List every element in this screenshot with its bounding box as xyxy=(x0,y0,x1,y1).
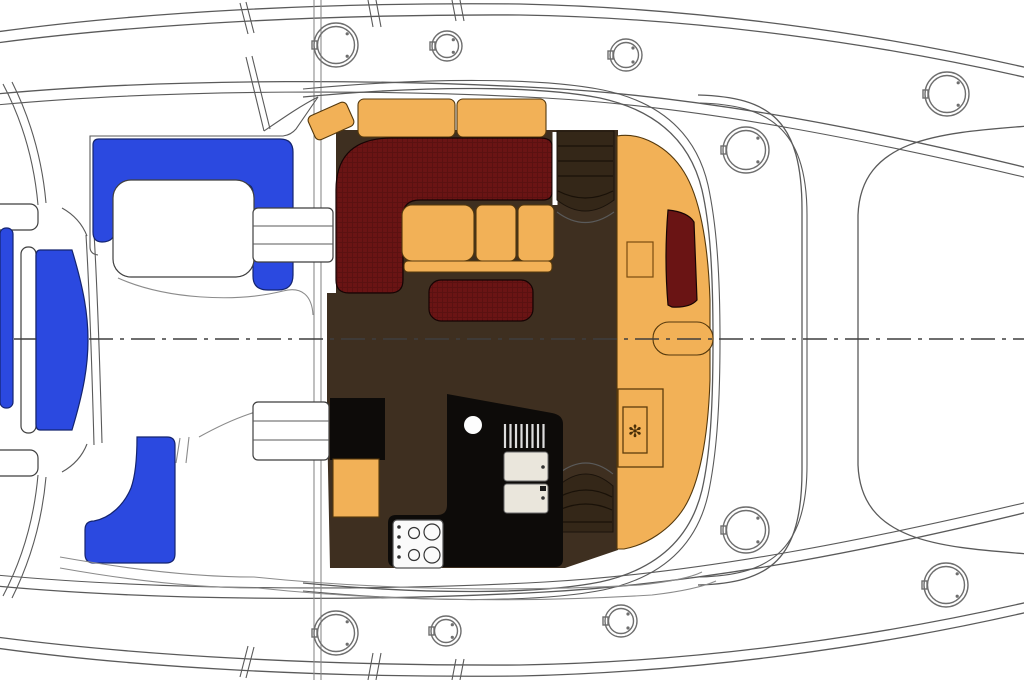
hatch xyxy=(312,611,358,655)
transom-step-plank xyxy=(21,247,36,433)
cockpit-table xyxy=(113,180,254,277)
hatch xyxy=(430,31,462,61)
sideboard-back-pad xyxy=(666,210,697,307)
deck-plan-drawing: ✻ xyxy=(0,0,1024,680)
stern-cushion-strip xyxy=(0,228,13,408)
hatch xyxy=(721,127,769,173)
foredeck-lines xyxy=(698,95,1024,585)
galley-left-block xyxy=(330,398,385,460)
cockpit-sofa-bottom xyxy=(85,437,175,563)
helm-seat-cushion xyxy=(36,250,88,430)
snowflake-icon: ✻ xyxy=(628,422,642,442)
sink xyxy=(464,416,482,434)
hatch xyxy=(603,605,637,637)
deck-plan-page: ✻ xyxy=(0,0,1024,680)
entry-steps-bottom xyxy=(253,402,329,460)
hatch xyxy=(721,507,769,553)
bench-seat xyxy=(402,205,554,272)
stove xyxy=(393,520,443,568)
stern-cleat-top xyxy=(0,204,38,230)
back-cushion-right xyxy=(457,99,546,137)
back-cushion-mid xyxy=(358,99,455,137)
hatch xyxy=(429,616,461,646)
ottoman xyxy=(429,280,533,321)
entry-steps-top xyxy=(253,208,333,262)
hatch xyxy=(608,39,642,71)
hatch xyxy=(922,563,968,607)
port-steps-block xyxy=(333,459,379,517)
stern-cleat-bottom xyxy=(0,450,38,476)
hatch xyxy=(923,72,969,116)
hatch xyxy=(312,23,358,67)
